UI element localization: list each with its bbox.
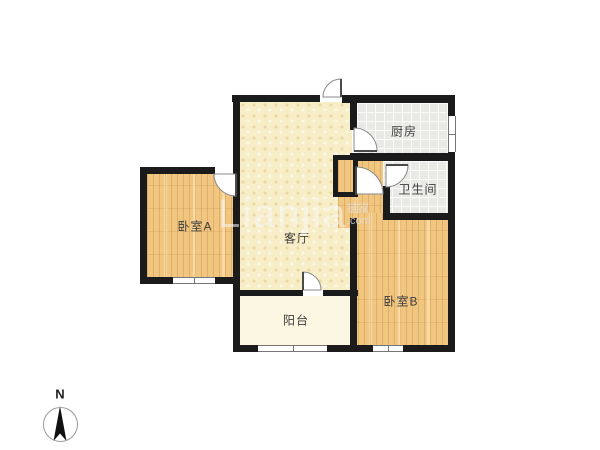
bedroom-a-label: 卧室A [177, 218, 212, 235]
hallway-door-arc [356, 167, 383, 194]
balcony-label: 阳台 [283, 312, 309, 329]
bedroom-b-label: 卧室B [383, 293, 418, 310]
bathroom-label: 卫生间 [398, 181, 437, 198]
kitchen-label: 厨房 [391, 123, 417, 140]
entry-door-arc [323, 79, 341, 97]
kitchen-door-arc [354, 128, 377, 151]
compass-north-label: N [55, 387, 64, 402]
floor-plan: 卧室A 客厅 厨房 卫生间 卧室B 阳台 Lianjia 链家 .com N [0, 0, 600, 450]
compass-circle-icon [43, 407, 78, 442]
lianjia-watermark: Lianjia [218, 192, 348, 237]
lianjia-watermark-cn: 链家 .com [347, 203, 371, 227]
balcony-door-arc [303, 272, 321, 290]
